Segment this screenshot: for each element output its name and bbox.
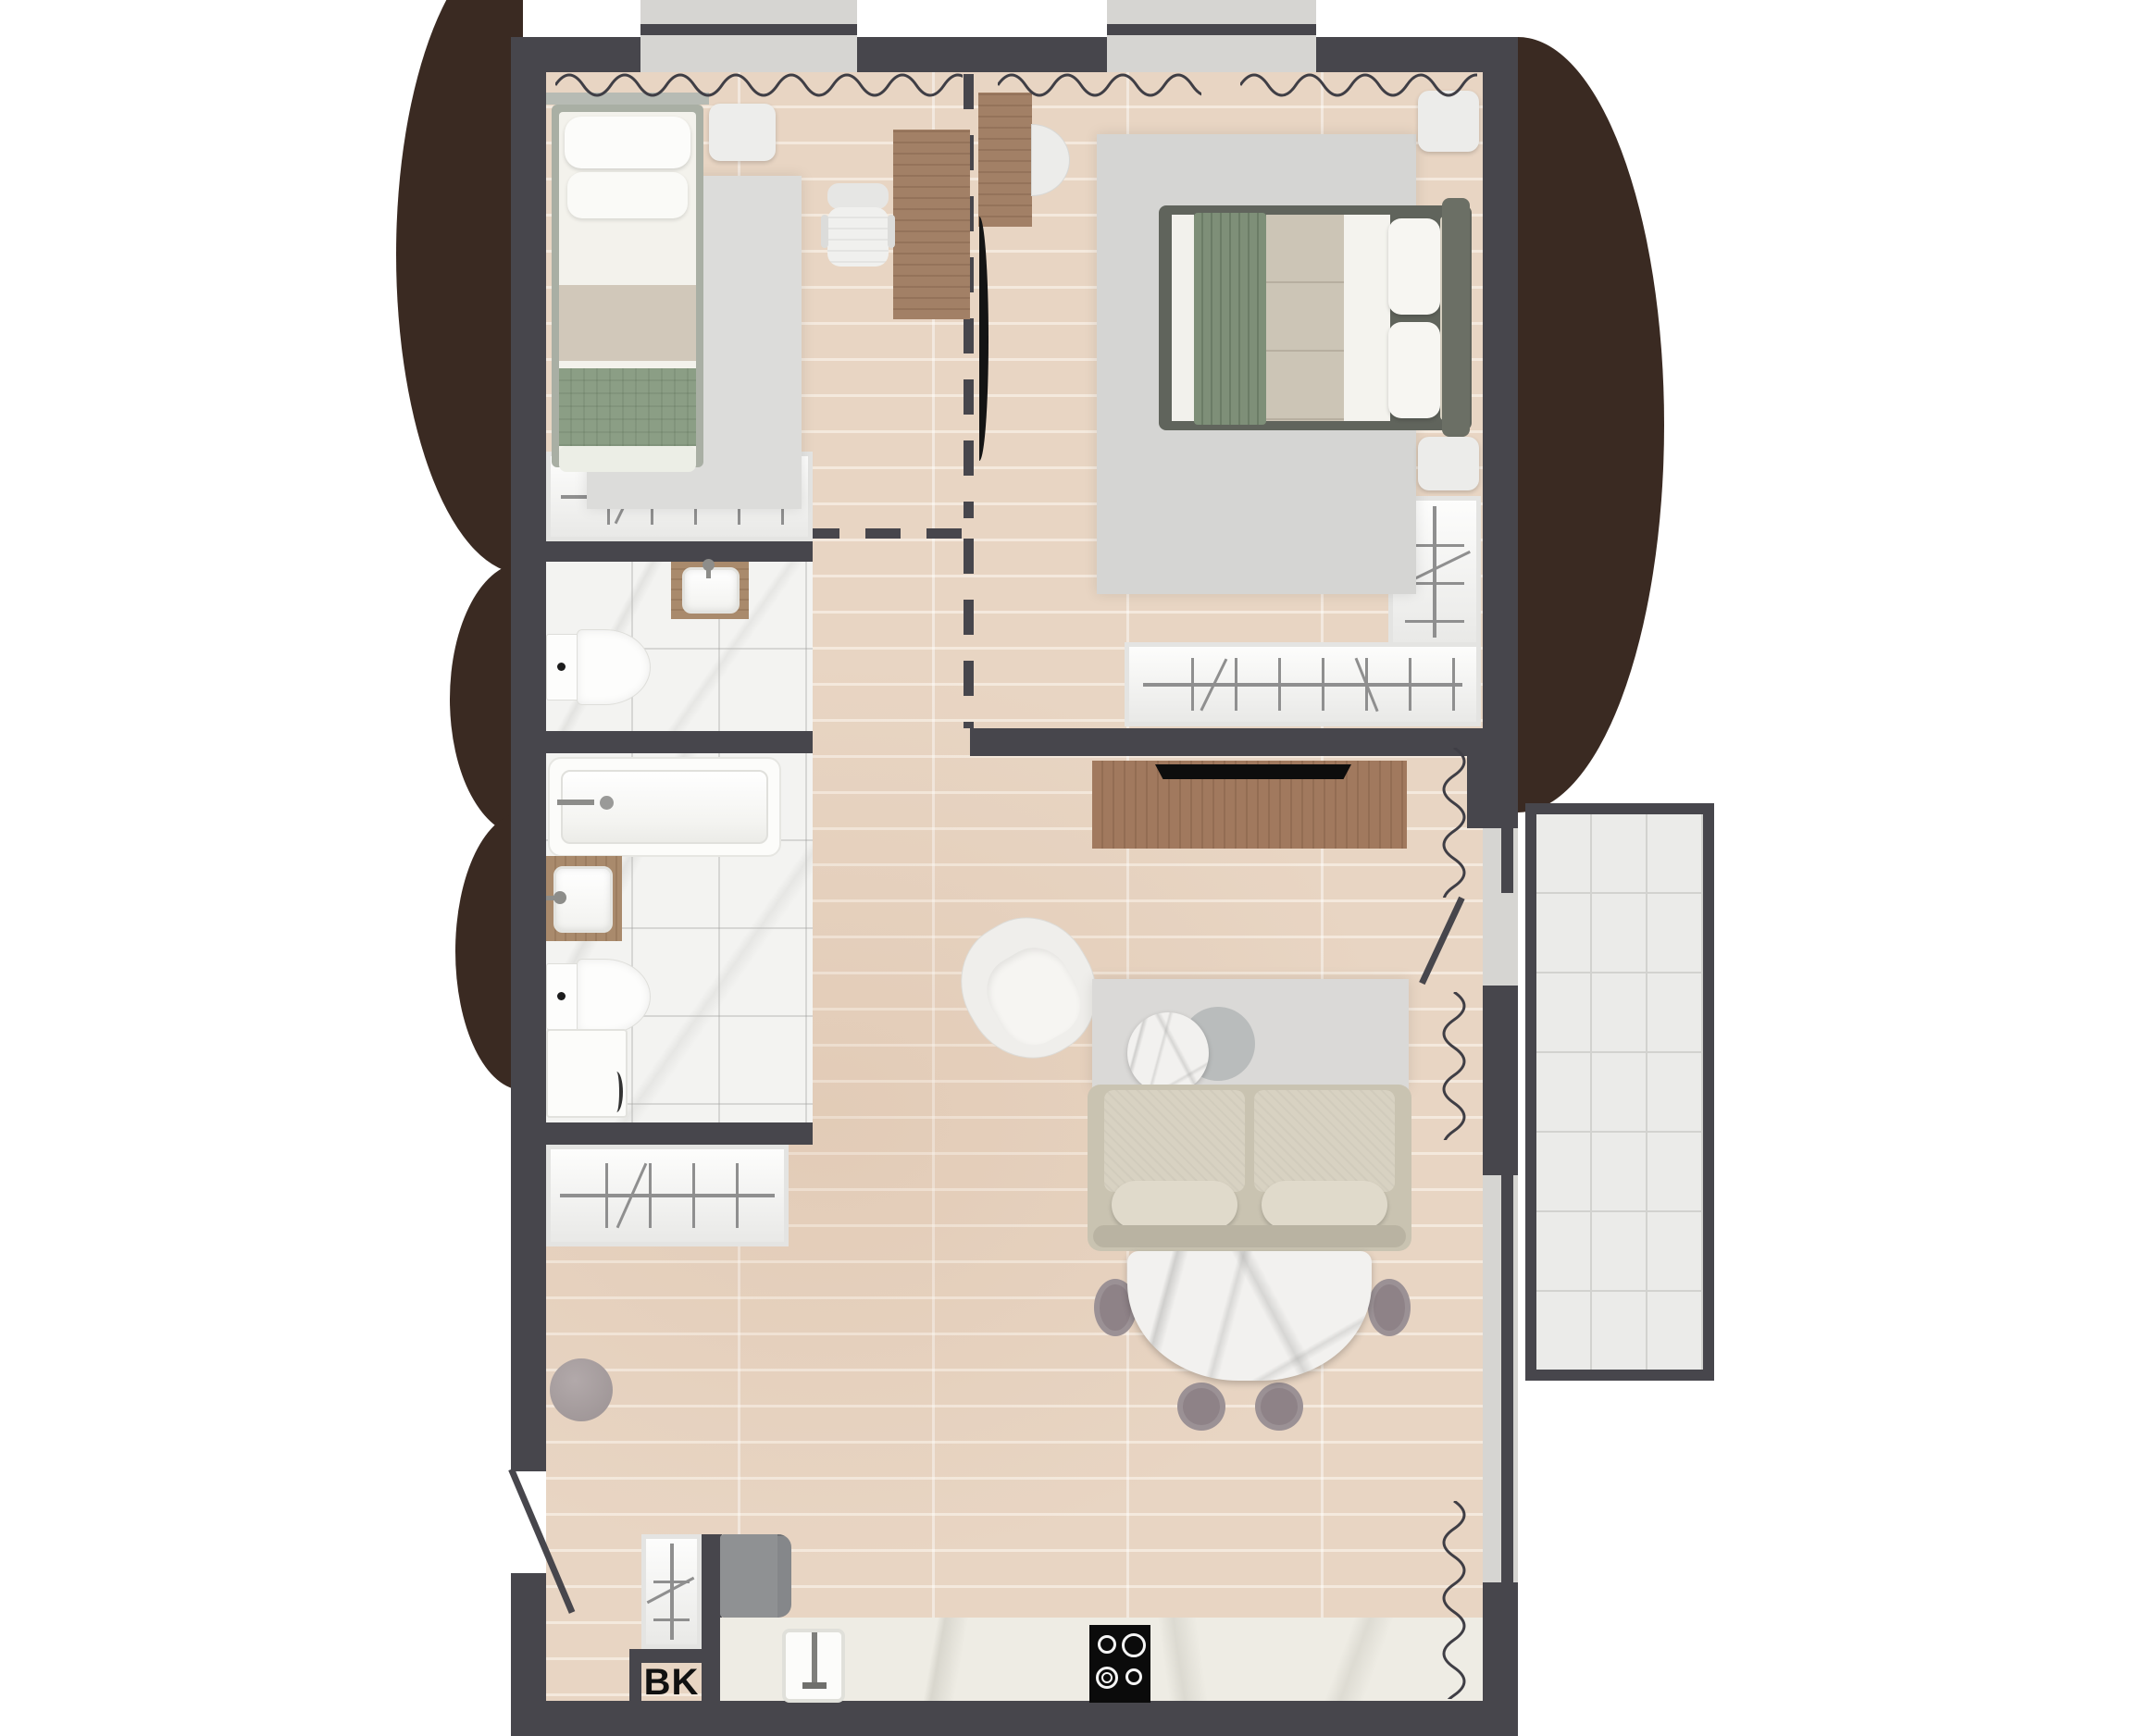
wc-toilet	[546, 629, 650, 703]
bathtub-drain-icon	[600, 796, 614, 810]
sofa-seat	[1104, 1090, 1245, 1192]
sofa-back-cushion	[1112, 1181, 1237, 1229]
wardrobe-master-bottom	[1125, 642, 1481, 726]
nightstand	[709, 104, 776, 161]
tv-screen	[1155, 764, 1351, 779]
bathtub	[548, 757, 781, 857]
kitchen-sink	[782, 1629, 845, 1703]
wardrobe-bk	[641, 1534, 702, 1649]
nightstand	[1418, 437, 1479, 490]
bed-duvet	[1266, 215, 1344, 421]
burner-icon	[1098, 1635, 1116, 1654]
wall-bottom	[511, 1701, 1518, 1736]
dashed-partition-hall-top	[804, 528, 968, 539]
burner-icon	[1125, 1668, 1142, 1685]
burner-icon	[1122, 1633, 1146, 1657]
bed-sheet-fold	[559, 285, 696, 361]
wall-left	[511, 37, 546, 1471]
desk-bedroom1	[893, 130, 970, 319]
side-table-marble	[1127, 1012, 1209, 1094]
dashed-partition-hall	[964, 539, 974, 728]
window-bedroom1	[640, 0, 857, 72]
pouf	[550, 1358, 613, 1421]
fridge	[720, 1534, 777, 1618]
bed-blanket	[559, 368, 696, 446]
fridge-door	[777, 1534, 791, 1618]
bk-room-label: BK	[641, 1663, 702, 1702]
floor-plan: BK	[0, 0, 2151, 1736]
burner-icon	[1101, 1672, 1113, 1683]
radiator-icon	[1240, 73, 1477, 97]
pillow	[1388, 322, 1440, 418]
wall-master-bottom	[970, 728, 1518, 756]
wall-master-bottom-corner	[1467, 728, 1518, 828]
nightstand	[1418, 91, 1479, 152]
sofa-seat	[1254, 1090, 1395, 1192]
pillow	[565, 117, 690, 168]
radiator-icon	[998, 73, 1201, 97]
radiator-icon	[1442, 1501, 1466, 1699]
window-living-lower	[1483, 1175, 1518, 1379]
sofa-back-cushion	[1262, 1181, 1387, 1229]
wall-wc-top	[511, 539, 813, 562]
dining-chair	[1255, 1383, 1303, 1431]
wall-bk-right	[702, 1534, 722, 1709]
wall-right-lower	[1483, 1582, 1518, 1736]
cooktop	[1089, 1625, 1150, 1703]
bed-throw	[1194, 213, 1266, 425]
window-kitchen	[1483, 1379, 1518, 1582]
bath-toilet	[546, 959, 650, 1033]
wc-faucet-knob-icon	[702, 559, 715, 571]
office-chair	[827, 183, 889, 267]
radiator-icon	[1442, 992, 1466, 1140]
bed-foot-sheet	[559, 446, 696, 472]
pillow	[1388, 218, 1440, 315]
radiator-icon	[555, 73, 963, 97]
dining-chair	[1368, 1279, 1411, 1336]
wardrobe-hall	[546, 1145, 789, 1246]
pillow	[567, 172, 688, 218]
wall-bath-bottom	[511, 1122, 813, 1145]
headboard	[1442, 198, 1470, 437]
balcony-door-opening	[1483, 893, 1518, 986]
washing-machine	[546, 1029, 628, 1118]
wall-right-upper	[1483, 37, 1518, 828]
dining-chair	[1177, 1383, 1225, 1431]
window-living-upper	[1483, 828, 1518, 893]
single-bed	[552, 105, 703, 467]
desk-master	[978, 93, 1032, 227]
radiator-icon	[1442, 748, 1466, 898]
sofa	[1088, 1085, 1411, 1251]
balcony	[1525, 803, 1714, 1381]
wc-sink-basin	[682, 567, 740, 614]
background-blob-right	[1518, 37, 1664, 812]
bk-label-text: BK	[644, 1662, 700, 1704]
background-blob-left-top	[396, 0, 523, 574]
bathtub-faucet-icon	[557, 800, 594, 805]
bath-faucet-knob-icon	[553, 891, 566, 904]
wall-wc-bottom	[511, 731, 813, 753]
window-master	[1107, 0, 1316, 72]
wall-right-mid	[1483, 986, 1518, 1175]
double-bed	[1159, 205, 1472, 430]
